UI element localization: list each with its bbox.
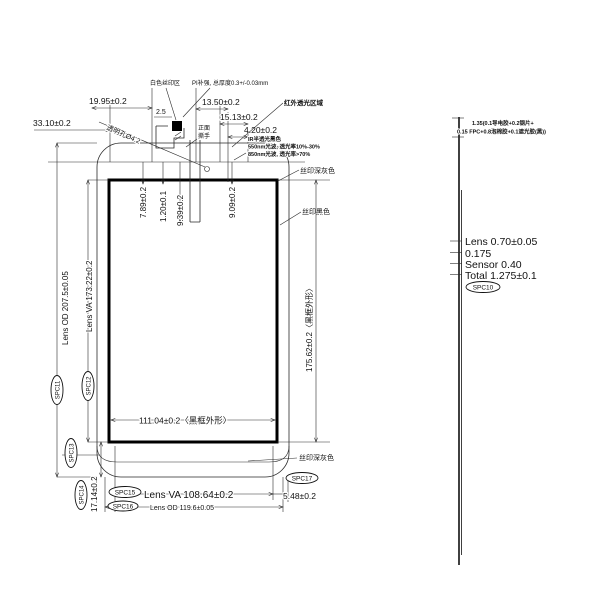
bottom-dimensions: 111.04±0.2〈黑框外形〉 SPC13 17.14±0.2 SPC14 S…: [65, 416, 318, 513]
dim-lens-od-horizontal: Lens OD 119.6±0.05: [150, 505, 214, 512]
pi-stiffener-label: PI补强, 总厚度0.3+/-0.03mm: [192, 79, 268, 87]
outer-lens-outline: [97, 143, 289, 477]
silk-print-labels: 丝印深灰色 丝印黑色 丝印深灰色: [248, 166, 335, 462]
dim-1-20: 1.20±0.1: [159, 190, 168, 222]
dim-7-89: 7.89±0.2: [139, 186, 148, 218]
stack-note-line2: 0.15 FPC+0.8泡棉胶+0.1遮光胶(黑)): [457, 128, 546, 136]
dim-4-20: 4.20±0.2: [244, 125, 277, 135]
transparent-hole-label: 透明孔Ø4.2: [105, 124, 141, 146]
left-vertical-dimensions: Lens OD 207.5±0.05 SPC11 Lens VA 173.22±…: [51, 143, 109, 477]
dim-33-10: 33.10±0.2: [33, 118, 71, 128]
ir-ink-line3: 850nm光波, 透光率>70%: [248, 150, 310, 158]
dim-15-13: 15.13±0.2: [220, 112, 258, 122]
pull-tab-label-line1: 正面: [198, 125, 210, 132]
spc14-label: SPC14: [80, 485, 86, 505]
dim-9-09: 9.09±0.2: [228, 186, 237, 218]
top-callouts: 白色丝印区 PI补强, 总厚度0.3+/-0.03mm 红外透光区域 IR半透光…: [99, 79, 324, 167]
dim-lens-va-horizontal: Lens VA 108.64±0.2: [144, 490, 234, 501]
drawing-svg: 19.95±0.2 33.10±0.2 13.50±0.2 15.13±0.2 …: [0, 0, 600, 600]
white-silk-label: 白色丝印区: [150, 79, 180, 87]
dim-lens-od-vertical: Lens OD 207.5±0.05: [61, 271, 70, 345]
dim-175-62: 175.62±0.2〈黑框外形〉: [304, 284, 314, 372]
dim-19-95: 19.95±0.2: [89, 96, 127, 106]
spc11-label: SPC11: [56, 380, 62, 399]
spc17-label: SPC17: [292, 476, 313, 483]
ir-ink-line2: 550nm光波, 透光率10%-30%: [248, 143, 320, 151]
spc15-label: SPC15: [115, 490, 136, 497]
dim-5-48: 5.48±0.2: [283, 491, 316, 501]
side-view-stack: 1.35(0.1导电胶+0.2钢片+ 0.15 FPC+0.8泡棉胶+0.1遮光…: [450, 117, 546, 565]
black-pad: [172, 121, 182, 131]
bottom-silk-boundary: [97, 446, 289, 462]
dim-111-04: 111.04±0.2〈黑框外形〉: [139, 416, 231, 426]
spc10-label: SPC10: [473, 285, 494, 292]
spc12-label: SPC12: [87, 376, 93, 396]
dim-17-14: 17.14±0.2: [90, 476, 99, 512]
ir-ink-line1: IR半透光黑色: [248, 135, 282, 143]
dim-9-39: 9.39±0.2: [176, 194, 185, 226]
dim-lens-va-vertical: Lens VA 173.22±0.2: [85, 260, 94, 332]
right-vertical-dimension: 175.62±0.2〈黑框外形〉: [277, 180, 330, 442]
spc16-label: SPC16: [113, 504, 134, 511]
silk-dark-gray-top-label: 丝印深灰色: [300, 166, 335, 175]
silk-dark-gray-bottom-label: 丝印深灰色: [299, 453, 334, 462]
engineering-drawing-canvas: 19.95±0.2 33.10±0.2 13.50±0.2 15.13±0.2 …: [0, 0, 600, 600]
spc13-label: SPC13: [70, 443, 76, 463]
top-dimensions: 19.95±0.2 33.10±0.2 13.50±0.2 15.13±0.2 …: [33, 96, 277, 137]
hatch-mark: [175, 132, 181, 140]
transparent-hole: [205, 167, 210, 172]
pull-tab-label-line2: 撕手: [198, 132, 210, 140]
stack-total-thickness: Total 1.275±0.1: [465, 270, 537, 282]
black-frame-outline: [109, 180, 277, 442]
stack-note-line1: 1.35(0.1导电胶+0.2钢片+: [472, 119, 534, 127]
upper-vertical-dimensions: 7.89±0.2 1.20±0.1 9.39±0.2 9.09±0.2: [139, 162, 237, 226]
dim-2-5: 2.5: [156, 109, 166, 116]
dim-13-50: 13.50±0.2: [202, 97, 240, 107]
ir-window-region-label: 红外透光区域: [284, 98, 324, 107]
stack-lens-thickness: Lens 0.70±0.05: [465, 236, 537, 248]
